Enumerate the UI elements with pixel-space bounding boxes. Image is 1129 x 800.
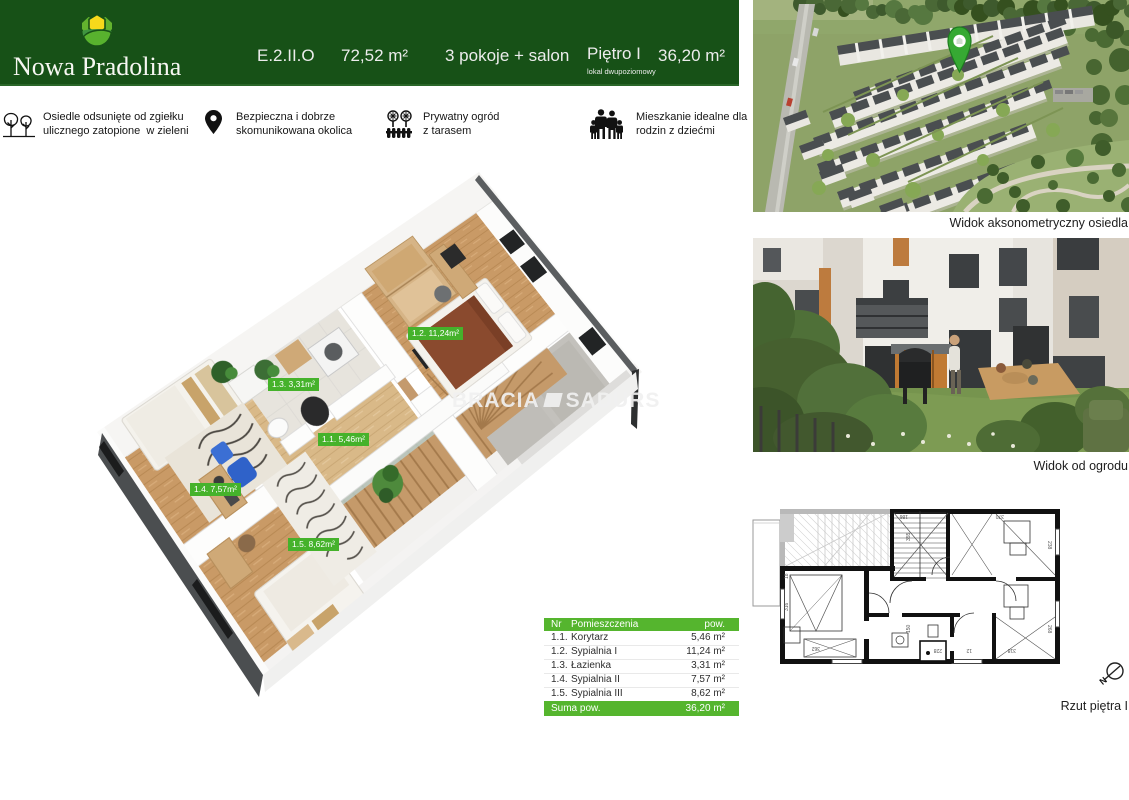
svg-text:268: 268 (1046, 625, 1052, 634)
svg-text:228: 228 (933, 647, 942, 653)
svg-text:186: 186 (899, 513, 908, 519)
svg-text:370: 370 (995, 513, 1004, 519)
svg-text:150: 150 (906, 624, 912, 633)
svg-text:12: 12 (966, 647, 972, 653)
svg-text:316: 316 (784, 602, 790, 611)
svg-text:355: 355 (906, 532, 912, 541)
svg-text:238: 238 (1046, 541, 1052, 550)
svg-text:18: 18 (784, 573, 790, 579)
svg-text:318: 318 (1007, 647, 1016, 653)
svg-text:362: 362 (811, 645, 820, 651)
